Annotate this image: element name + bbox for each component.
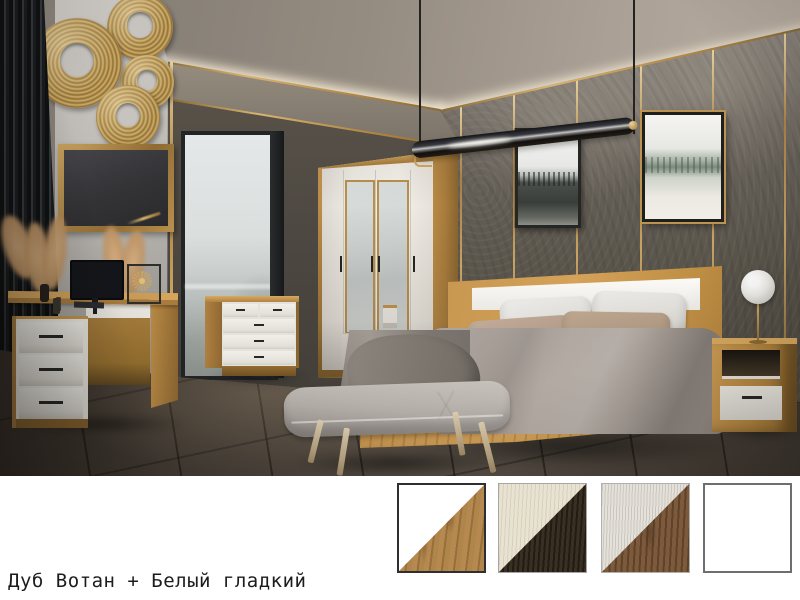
gold-disc-wall-decor [96, 85, 160, 149]
finish-swatch-whitewash-walnut[interactable] [601, 483, 690, 573]
sphere-table-lamp-right [741, 270, 775, 304]
chest-of-drawers [205, 296, 299, 380]
desk-decor [40, 284, 49, 302]
desk-back-panel [86, 303, 150, 385]
finish-caption: Дуб Вотан + Белый гладкий [8, 570, 306, 592]
keyboard [74, 301, 104, 308]
finish-swatch-wood-half [601, 483, 690, 573]
bedroom-render [0, 0, 800, 476]
framed-art-winter-forest [642, 112, 724, 222]
sunburst-decor [127, 264, 161, 304]
desk-side-panel [151, 304, 178, 408]
monitor [70, 260, 124, 300]
pendant-rod [419, 0, 421, 154]
finish-swatch-wood-half [398, 484, 485, 572]
product-card: Дуб Вотан + Белый гладкий [0, 0, 800, 600]
desk-drawer-pedestal [12, 316, 88, 428]
nightstand-drawer [720, 386, 782, 420]
nightstand-shelf [722, 350, 780, 379]
finish-swatch-plain-white[interactable] [703, 483, 792, 573]
bench-shadow [288, 450, 508, 476]
bedside-table-right [712, 338, 797, 432]
wall-mirror [58, 144, 174, 232]
finish-swatch-oak-wotan-white[interactable] [397, 483, 486, 573]
finish-swatch-cream-wood-wenge[interactable] [498, 483, 587, 573]
finish-swatch-wood-half [498, 483, 587, 573]
pendant-rod [633, 0, 635, 134]
